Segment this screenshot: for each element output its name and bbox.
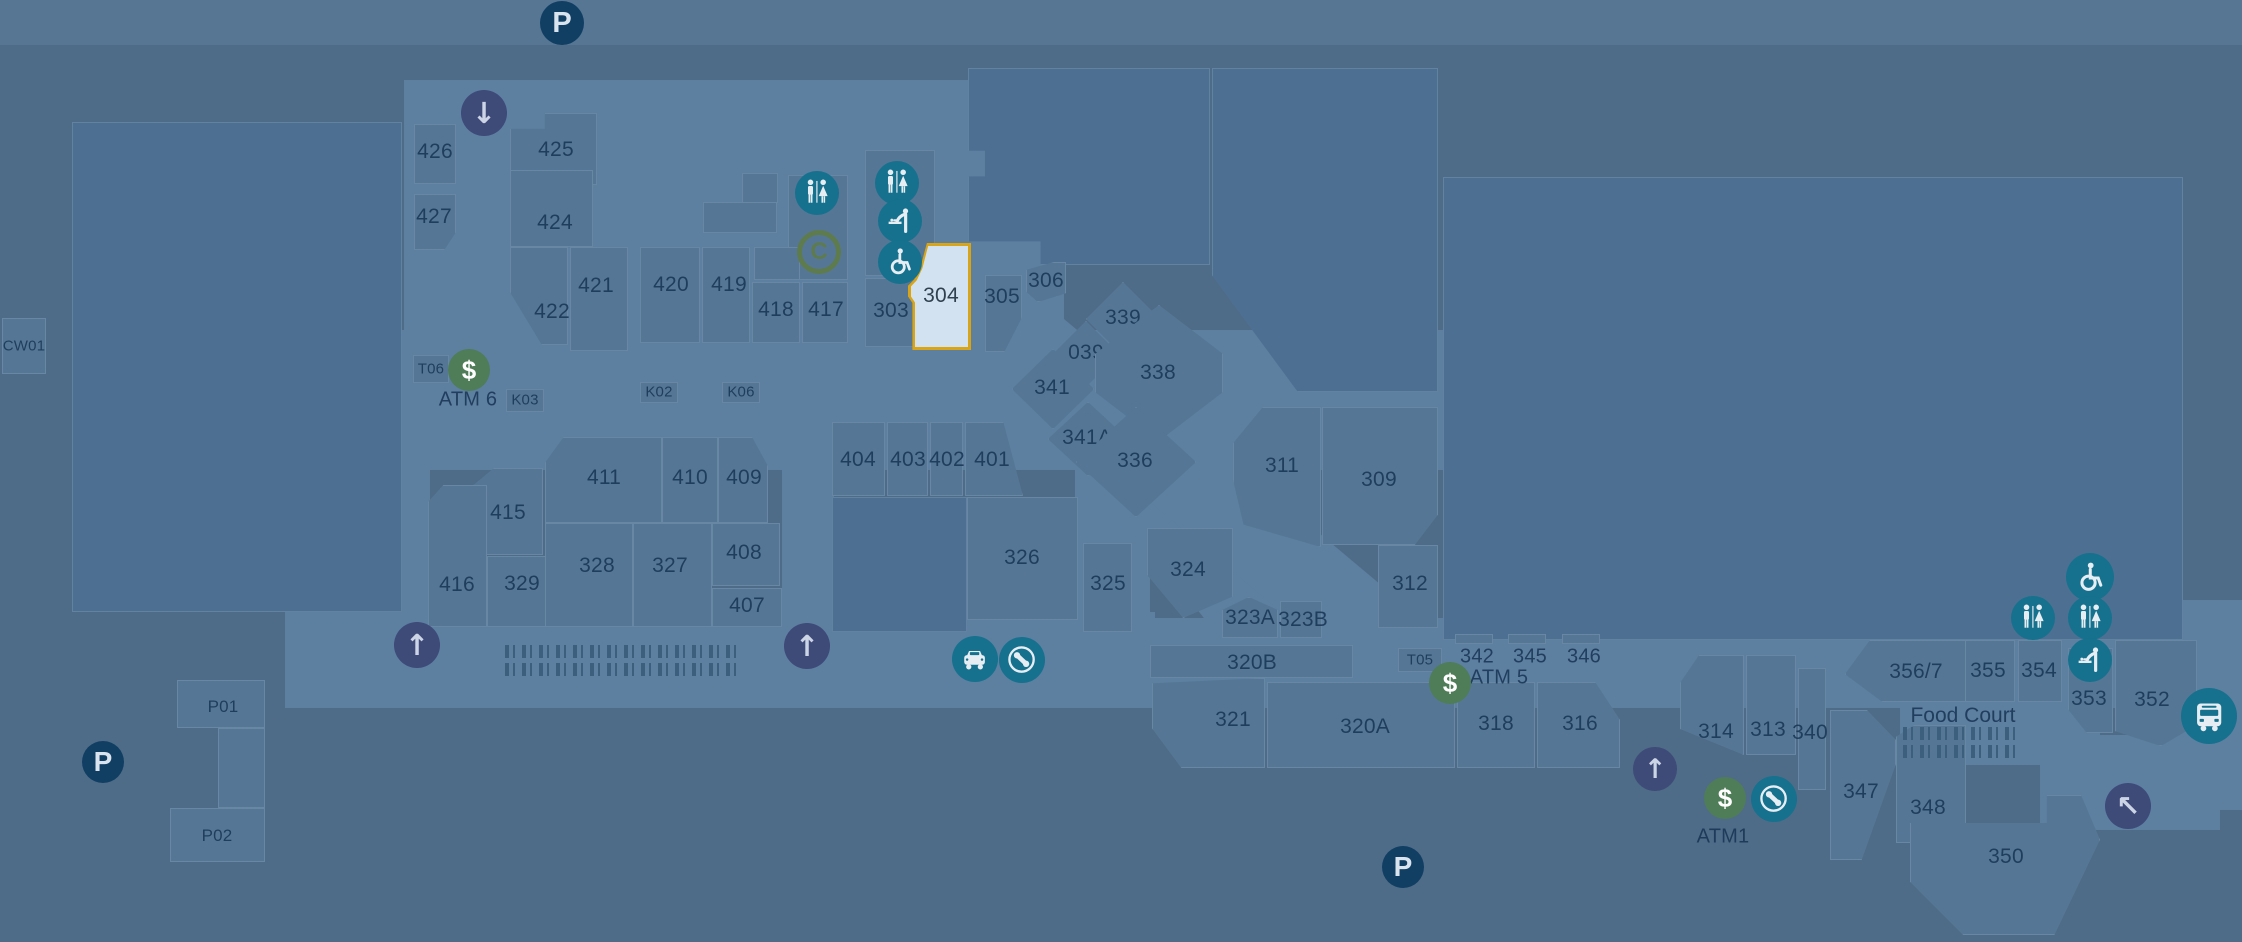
store-label-341: 341 (1034, 376, 1070, 400)
store-label-338: 338 (1140, 361, 1176, 385)
store-label-355: 355 (1970, 659, 2006, 683)
store-label-328: 328 (579, 554, 615, 578)
store-block-419a[interactable] (742, 173, 778, 203)
store-label-323A: 323A (1225, 606, 1275, 630)
store-label-326: 326 (1004, 546, 1040, 570)
parking-icon: P (540, 1, 584, 45)
escalator-down-icon: ↓ (461, 90, 507, 136)
store-label-T06: T06 (418, 361, 444, 378)
store-label-417: 417 (808, 298, 844, 322)
label-342: 342 (1460, 646, 1494, 669)
store-label-425: 425 (538, 138, 574, 162)
store-label-422: 422 (534, 300, 570, 324)
store-label-324: 324 (1170, 558, 1206, 582)
label-atm-6: ATM 6 (439, 389, 497, 412)
store-label-329: 329 (504, 572, 540, 596)
store-label-CW01: CW01 (3, 338, 45, 355)
store-label-309: 309 (1361, 468, 1397, 492)
label-345: 345 (1513, 646, 1547, 669)
seating-figures-row-2 (1903, 727, 2019, 740)
toilets-icon (2011, 596, 2055, 640)
store-label-K03: K03 (511, 392, 538, 409)
store-label-313: 313 (1750, 718, 1786, 742)
mall-map: Woolworths M201 BIGW M101 Best&Less 307A… (0, 0, 2242, 942)
store-307A-bestless[interactable] (968, 68, 1210, 265)
store-block-418top[interactable] (754, 247, 800, 280)
escalator-up-icon: ↑ (784, 623, 830, 669)
taxi-icon (952, 636, 998, 682)
store-label-327: 327 (652, 554, 688, 578)
label-atm1: ATM1 (1697, 826, 1750, 849)
atm-icon: $ (448, 349, 490, 391)
store-label-408: 408 (726, 541, 762, 565)
store-label-418: 418 (758, 298, 794, 322)
wheelchair-icon (878, 240, 922, 284)
store-label-321: 321 (1215, 708, 1251, 732)
store-label-325: 325 (1090, 572, 1126, 596)
seating-figures-row-3 (1903, 745, 2019, 758)
atm-icon: $ (1429, 662, 1471, 704)
store-label-402: 402 (929, 448, 965, 472)
store-label-352: 352 (2134, 688, 2170, 712)
store-label-354: 354 (2021, 659, 2057, 683)
store-label-356/7: 356/7 (1889, 660, 1943, 684)
store-label-424: 424 (537, 211, 573, 235)
store-label-318: 318 (1478, 712, 1514, 736)
atm-icon: $ (1704, 777, 1746, 819)
store-label-401: 401 (974, 448, 1010, 472)
wheelchair-icon (2066, 553, 2114, 601)
store-label-404: 404 (840, 448, 876, 472)
baby-change-icon (2068, 638, 2112, 682)
seating-figures-row-0 (505, 645, 740, 658)
label-346: 346 (1567, 646, 1601, 669)
store-421[interactable] (570, 247, 628, 351)
store-label-305: 305 (984, 285, 1020, 309)
escalator-up-left-icon: ↖ (2105, 783, 2151, 829)
store-label-K06: K06 (727, 384, 754, 401)
store-tab-342[interactable] (1455, 634, 1493, 644)
store-label-427: 427 (416, 205, 452, 229)
store-label-420: 420 (653, 273, 689, 297)
store-label-336: 336 (1117, 449, 1153, 473)
store-label-311: 311 (1265, 454, 1299, 478)
store-label-K02: K02 (645, 384, 672, 401)
store-label-407: 407 (729, 594, 765, 618)
phone-icon (1751, 776, 1797, 822)
store-label-316: 316 (1562, 712, 1598, 736)
store-label-314: 314 (1698, 720, 1734, 744)
store-label-312: 312 (1392, 572, 1428, 596)
escalator-up-icon: ↑ (394, 622, 440, 668)
toilets-icon (795, 171, 839, 215)
store-label-T05: T05 (1407, 652, 1433, 669)
food-court-label: Food Court (1910, 704, 2015, 728)
store-406-blooms[interactable] (832, 497, 967, 632)
store-label-426: 426 (417, 140, 453, 164)
bus-icon (2181, 688, 2237, 744)
store-label-419: 419 (711, 273, 747, 297)
seating-figures-row-1 (505, 663, 740, 676)
store-label-415: 415 (490, 501, 526, 525)
store-label-303: 303 (873, 299, 909, 323)
store-label-348: 348 (1910, 796, 1946, 820)
store-label-403: 403 (890, 448, 926, 472)
walkway-0 (0, 0, 2242, 45)
store-label-306: 306 (1028, 269, 1064, 293)
store-label-353: 353 (2071, 687, 2107, 711)
store-label-320A: 320A (1340, 715, 1390, 739)
store-tab-345[interactable] (1508, 634, 1546, 644)
store-M201-woolworths[interactable] (72, 122, 402, 612)
store-label-411: 411 (587, 466, 621, 490)
store-416[interactable] (428, 485, 487, 627)
store-label-421: 421 (578, 274, 614, 298)
concierge-c-icon: C (797, 230, 841, 274)
store-label-P02: P02 (202, 826, 233, 846)
label-atm-5: ATM 5 (1470, 667, 1528, 690)
store-label-340: 340 (1792, 721, 1828, 745)
store-424[interactable] (510, 170, 593, 247)
store-tab-346[interactable] (1562, 634, 1600, 644)
baby-change-icon (878, 199, 922, 243)
store-label-347: 347 (1843, 780, 1879, 804)
store-label-350: 350 (1988, 845, 2024, 869)
selected-store-label: 304 (923, 284, 959, 308)
store-block-419b[interactable] (703, 202, 777, 233)
store-label-416: 416 (439, 573, 475, 597)
store-label-P01: P01 (208, 697, 239, 717)
parking-icon: P (1382, 846, 1424, 888)
phone-icon (999, 637, 1045, 683)
store-label-409: 409 (726, 466, 762, 490)
store-label-410: 410 (672, 466, 708, 490)
store-label-323B: 323B (1278, 608, 1328, 632)
parking-icon: P (82, 741, 124, 783)
escalator-up-icon: ↑ (1633, 747, 1677, 791)
store-P-link[interactable] (218, 728, 265, 808)
toilets-icon (2068, 596, 2112, 640)
store-label-320B: 320B (1227, 651, 1277, 675)
